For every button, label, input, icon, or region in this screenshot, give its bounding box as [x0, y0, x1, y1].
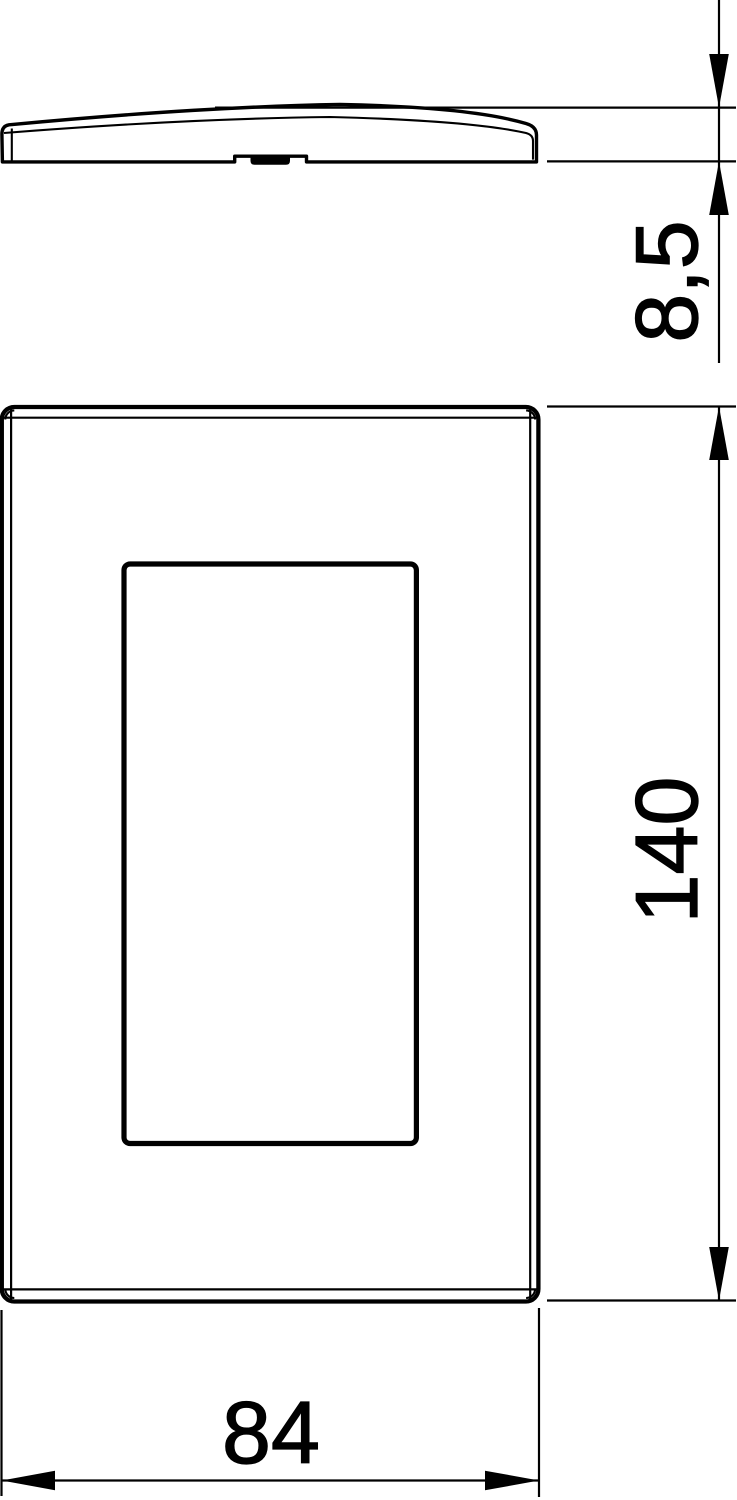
svg-text:140: 140: [617, 777, 716, 924]
svg-text:8,5: 8,5: [617, 220, 716, 342]
svg-text:84: 84: [222, 1383, 320, 1482]
